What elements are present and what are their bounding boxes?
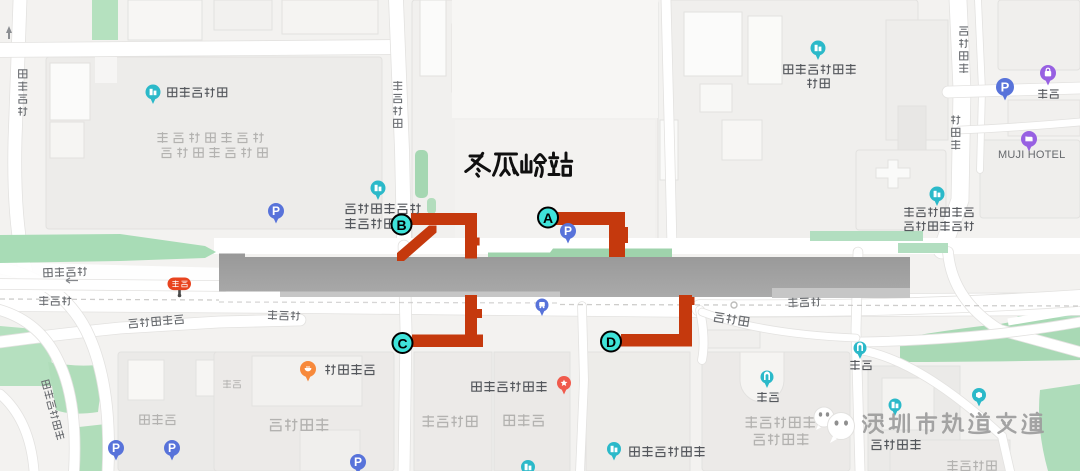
svg-text:P: P — [168, 441, 176, 455]
svg-text:P: P — [112, 441, 120, 455]
svg-text:P: P — [354, 455, 362, 469]
svg-text:P: P — [272, 204, 280, 218]
svg-text:A: A — [543, 210, 553, 226]
svg-text:P: P — [564, 224, 572, 238]
svg-text:C: C — [397, 335, 407, 351]
svg-text:MUJI HOTEL: MUJI HOTEL — [998, 149, 1065, 161]
svg-text:D: D — [606, 334, 616, 350]
svg-text:P: P — [1001, 80, 1010, 95]
svg-text:B: B — [396, 217, 406, 233]
